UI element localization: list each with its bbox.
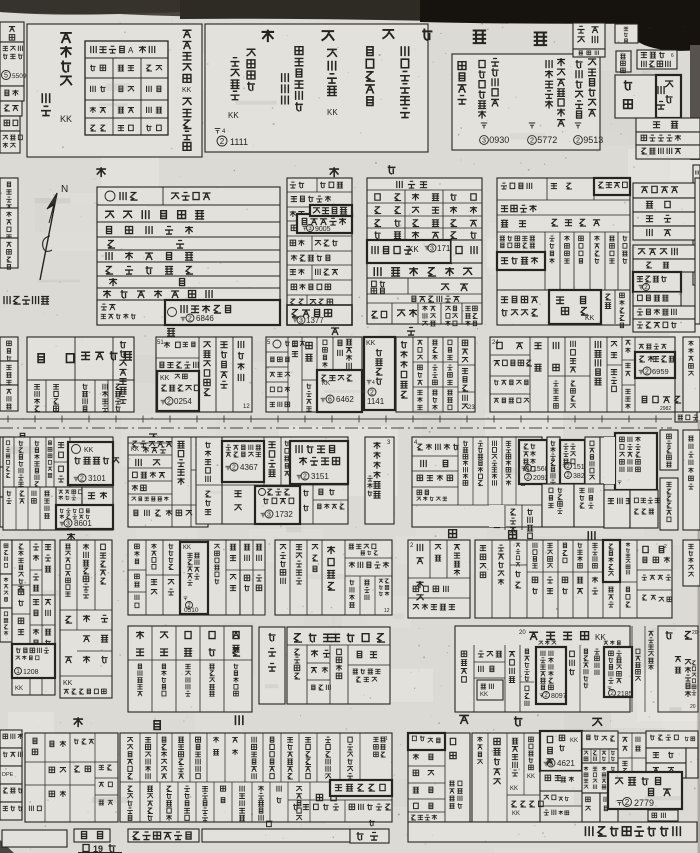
svg-text:KK: KK	[585, 315, 595, 322]
svg-text:23: 23	[468, 405, 475, 411]
svg-text:9513: 9513	[583, 135, 603, 145]
svg-text:3151: 3151	[311, 472, 329, 481]
svg-text:KK: KK	[595, 633, 606, 642]
svg-text:DPE: DPE	[2, 772, 14, 778]
svg-text:2: 2	[188, 316, 192, 323]
svg-text:51: 51	[157, 340, 164, 346]
svg-text:4: 4	[372, 380, 375, 386]
svg-text:20: 20	[692, 630, 698, 636]
svg-text:KK: KK	[15, 686, 23, 692]
svg-text:2: 2	[370, 390, 374, 397]
svg-text:1377: 1377	[306, 316, 324, 325]
svg-text:2: 2	[80, 476, 84, 483]
svg-text:8097: 8097	[551, 693, 567, 700]
svg-text:2: 2	[167, 399, 171, 406]
svg-text:4367: 4367	[240, 463, 258, 472]
svg-text:KK: KK	[182, 87, 192, 94]
svg-text:24: 24	[492, 340, 499, 346]
svg-text:KK: KK	[512, 811, 520, 817]
svg-text:6: 6	[328, 397, 332, 404]
svg-text:2092: 2092	[533, 475, 549, 482]
svg-text:8601: 8601	[74, 519, 92, 528]
svg-text:KK: KK	[408, 245, 419, 254]
svg-text:KK: KK	[228, 111, 239, 120]
svg-text:KK: KK	[63, 680, 73, 687]
svg-text:3: 3	[267, 512, 271, 519]
svg-text:2: 2	[625, 798, 630, 807]
svg-text:0254: 0254	[174, 397, 192, 406]
svg-text:6959: 6959	[652, 367, 669, 376]
svg-text:KK: KK	[131, 447, 139, 453]
svg-text:3: 3	[482, 136, 486, 145]
svg-text:KK: KK	[322, 381, 330, 387]
svg-text:6462: 6462	[336, 395, 354, 404]
svg-text:2: 2	[576, 136, 580, 145]
svg-text:1111: 1111	[230, 137, 248, 147]
svg-text:A: A	[128, 46, 134, 55]
svg-text:6846: 6846	[196, 314, 214, 323]
svg-text:20: 20	[519, 630, 526, 636]
svg-text:N: N	[61, 184, 68, 195]
svg-text:KK: KK	[84, 447, 94, 454]
svg-text:19: 19	[93, 844, 103, 853]
svg-text:3101: 3101	[88, 474, 106, 483]
svg-text:4621: 4621	[557, 759, 575, 768]
svg-text:KK: KK	[570, 738, 578, 744]
svg-text:5: 5	[4, 73, 8, 80]
svg-text:KK: KK	[60, 114, 72, 124]
svg-text:KK: KK	[510, 786, 518, 792]
svg-text:KK: KK	[480, 692, 488, 698]
svg-text:2185: 2185	[617, 691, 633, 698]
svg-text:6: 6	[671, 53, 674, 59]
svg-text:5509: 5509	[12, 73, 27, 80]
svg-text:2: 2	[220, 137, 225, 146]
svg-text:2: 2	[645, 369, 649, 376]
svg-text:3: 3	[299, 318, 303, 325]
svg-text:2: 2	[232, 465, 236, 472]
svg-text:0930: 0930	[489, 135, 509, 145]
svg-text:9005: 9005	[315, 226, 331, 233]
svg-text:2: 2	[664, 544, 667, 550]
svg-text:3: 3	[66, 521, 70, 528]
svg-text:1732: 1732	[275, 510, 293, 519]
svg-text:1568: 1568	[533, 466, 549, 473]
svg-text:KK: KK	[527, 774, 535, 780]
svg-text:12: 12	[384, 608, 390, 614]
svg-text:0510: 0510	[184, 607, 199, 614]
svg-text:2982: 2982	[660, 406, 671, 412]
svg-text:KK: KK	[366, 340, 376, 347]
svg-text:1208: 1208	[23, 669, 39, 676]
svg-text:KK: KK	[183, 545, 191, 551]
svg-text:1141: 1141	[367, 397, 385, 406]
svg-text:3: 3	[430, 246, 434, 253]
svg-text:2: 2	[303, 474, 307, 481]
svg-text:KK: KK	[327, 108, 338, 117]
svg-text:KK: KK	[160, 375, 170, 382]
svg-text:12: 12	[243, 404, 250, 410]
svg-text:1: 1	[385, 736, 388, 742]
svg-text:20: 20	[690, 704, 696, 710]
